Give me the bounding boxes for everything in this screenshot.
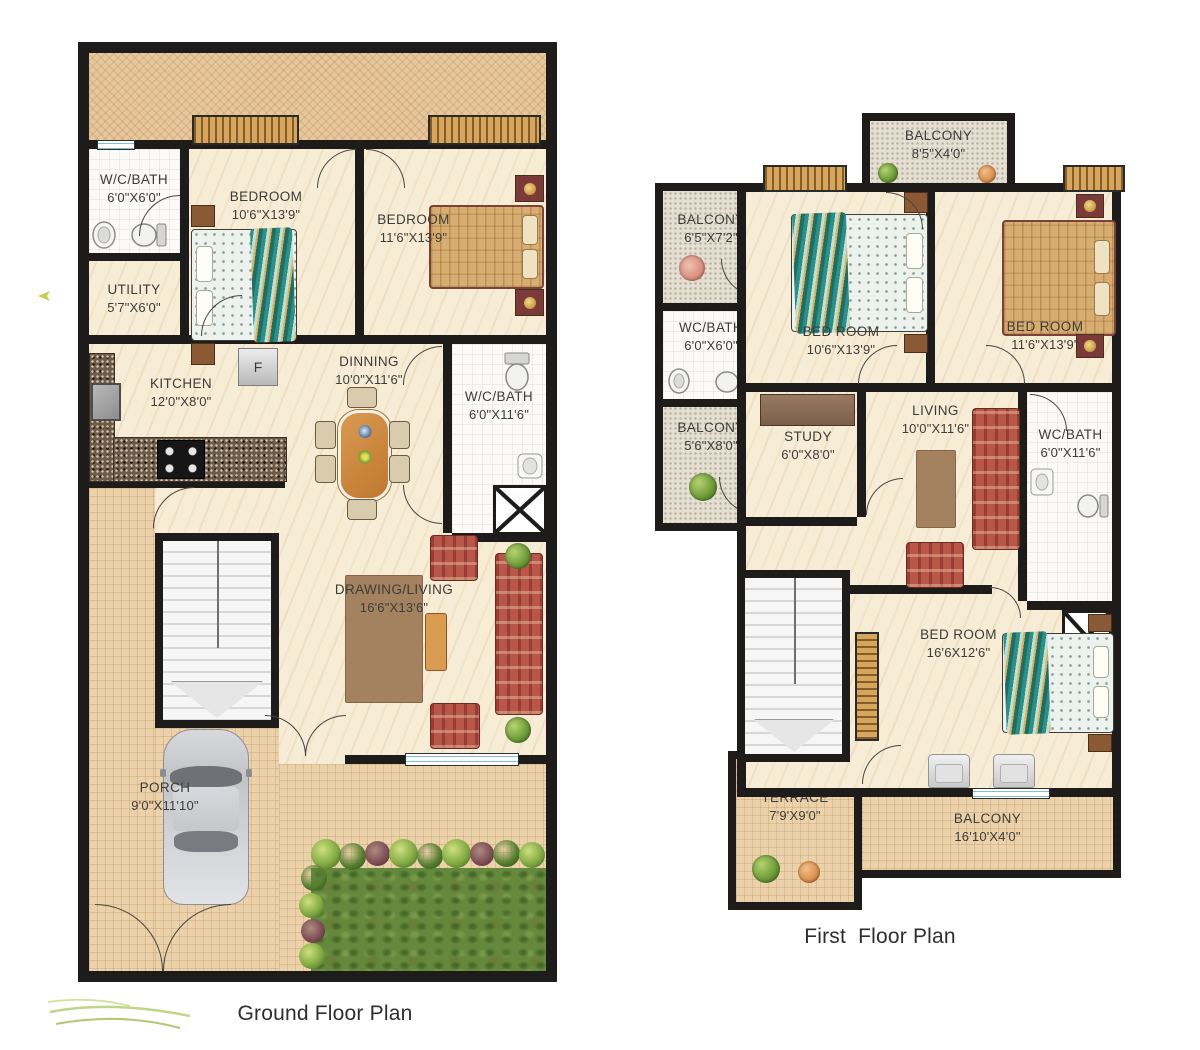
ground-floor-plan: F — [78, 42, 557, 982]
door-swing-icon — [305, 715, 346, 756]
room-dims: 10'6"X13'9" — [191, 206, 341, 223]
room-label: UTILITY 5'7"X6'0" — [91, 281, 177, 316]
room-name: W/C/BATH — [452, 388, 546, 406]
first-floor-plan: BALCONY 8'5"X4'0" TERRACE 7'9'X9'0" BALC… — [648, 106, 1130, 926]
room-dims: 11'6"X13'9" — [978, 336, 1112, 353]
wall — [1027, 601, 1112, 610]
room-name: BEDROOM — [191, 188, 341, 206]
door-swing-icon — [866, 478, 903, 515]
armchair — [906, 542, 964, 588]
stair-landing-chevron — [171, 682, 263, 718]
room-dims: 12'0"X8'0" — [111, 393, 251, 410]
plate-icon — [358, 425, 371, 438]
door-swing-icon — [862, 745, 901, 784]
window-hatch — [1063, 165, 1125, 192]
shrub-icon — [389, 839, 418, 868]
room-label: BALCONY 16'10'X4'0" — [862, 810, 1113, 845]
armchair — [430, 703, 480, 749]
room-name: BED ROOM — [978, 318, 1112, 336]
car-mirror — [160, 769, 165, 776]
fridge-label: F — [254, 359, 263, 375]
shrub-icon — [365, 841, 390, 866]
room-name: PORCH — [95, 779, 235, 797]
dining-table — [338, 410, 391, 501]
nightstand — [191, 343, 215, 365]
room-dims: 11'6"X13'9" — [351, 229, 476, 246]
garden-lawn — [311, 868, 546, 971]
plant-icon — [679, 255, 705, 281]
shrub-icon — [301, 865, 327, 891]
car-mirror — [246, 769, 251, 776]
window-hatch — [428, 115, 541, 145]
stair-rail — [217, 541, 219, 648]
pillow — [1093, 686, 1109, 718]
room-label: KITCHEN 12'0"X8'0" — [111, 375, 251, 410]
room-dims: 5'7"X6'0" — [91, 299, 177, 316]
nightstand — [1076, 194, 1104, 218]
wall — [746, 383, 1112, 392]
room-name: DINNING — [294, 353, 444, 371]
room-name: LIVING — [868, 402, 1003, 420]
pillow — [1094, 282, 1110, 316]
room-dims: 6'0"X8'0" — [754, 446, 862, 463]
armchair — [430, 535, 478, 581]
room-dims: 6'0"X6'0" — [91, 189, 177, 206]
room-name: BEDROOM — [351, 211, 476, 229]
plant-icon — [752, 855, 780, 883]
shrub-icon — [442, 839, 471, 868]
sofa — [495, 553, 543, 715]
plant-icon — [878, 163, 898, 183]
toilet-icon — [501, 351, 533, 393]
pillow — [1093, 646, 1109, 678]
window-icon — [405, 753, 519, 766]
side-passage-floor — [89, 480, 155, 971]
room-label: PORCH 9'0"X11'10" — [95, 779, 235, 814]
room-name: BED ROOM — [771, 323, 911, 341]
nightstand — [515, 175, 544, 202]
nightstand — [515, 289, 544, 316]
plant-icon — [689, 473, 717, 501]
room-dims: 10'0"X11'6" — [868, 420, 1003, 437]
room-dims: 7'9'X9'0" — [736, 807, 854, 824]
plant-icon — [505, 717, 531, 743]
window-hatch — [763, 165, 847, 192]
room-label: BEDROOM 11'6"X13'9" — [351, 211, 476, 246]
wall — [180, 140, 189, 344]
rug — [916, 450, 956, 528]
room-label: BED ROOM 10'6"X13'9" — [771, 323, 911, 358]
room-dims: 6'0"X11'6" — [1029, 444, 1112, 461]
wardrobe — [760, 394, 855, 426]
room-name: BALCONY — [862, 810, 1113, 828]
staircase — [155, 533, 279, 728]
shrub-icon — [299, 943, 325, 969]
sink-icon — [667, 367, 691, 395]
bed-throw — [792, 212, 850, 334]
room-dims: 16'6X12'6" — [876, 644, 1041, 661]
window-icon — [972, 788, 1050, 799]
stair-landing-chevron — [754, 720, 834, 752]
stove-icon — [157, 440, 205, 479]
bed — [791, 214, 928, 332]
room-label: DRAWING/LIVING 16'6"X13'6" — [294, 581, 494, 616]
room-label: W/C/BATH 6'0"X11'6" — [452, 388, 546, 423]
sink-icon — [91, 221, 117, 249]
door-swing-icon — [153, 487, 194, 528]
room-dims: 16'10'X4'0" — [862, 828, 1113, 845]
room-label: LIVING 10'0"X11'6" — [868, 402, 1003, 437]
shrub-icon — [470, 842, 494, 866]
door-swing-icon — [265, 715, 306, 756]
room-label: BEDROOM 10'6"X13'9" — [191, 188, 341, 223]
bed-throw — [250, 227, 296, 342]
shrub-icon — [417, 843, 443, 869]
pillow — [522, 249, 538, 279]
dining-chair — [347, 387, 377, 408]
toilet-icon — [1076, 492, 1110, 520]
window-hatch — [192, 115, 299, 145]
room-name: KITCHEN — [111, 375, 251, 393]
wall — [746, 517, 857, 526]
room-label: W/C/BATH 6'0"X6'0" — [91, 171, 177, 206]
stair-rail — [794, 578, 796, 684]
dining-chair — [389, 455, 410, 483]
nightstand — [1088, 734, 1112, 752]
room-name: UTILITY — [91, 281, 177, 299]
shrub-icon — [493, 840, 520, 867]
room-label: WC/BATH 6'0"X11'6" — [1029, 426, 1112, 461]
room-dims: 8'5"X4'0" — [870, 145, 1007, 162]
wall — [345, 755, 405, 764]
plant-icon — [798, 861, 820, 883]
first-floor-main: WC/BATH 6'0"X11'6" — [737, 183, 1121, 797]
room-label: BALCONY 8'5"X4'0" — [870, 127, 1007, 162]
sink-icon — [517, 453, 543, 479]
sink-icon — [1030, 468, 1054, 496]
flower-icon — [358, 450, 372, 464]
shrub-icon — [301, 919, 325, 943]
room-dims: 6'0"X11'6" — [452, 406, 546, 423]
armchair — [993, 754, 1035, 788]
door-swing-icon — [366, 149, 405, 188]
wall — [89, 253, 180, 261]
staircase — [737, 570, 850, 762]
room-label: DINNING 10'0"X11'6" — [294, 353, 444, 388]
wall — [89, 335, 546, 344]
balcony-bottom: BALCONY 16'10'X4'0" — [854, 788, 1121, 878]
wall — [443, 344, 452, 533]
room-label: STUDY 6'0"X8'0" — [754, 428, 862, 463]
pillow — [196, 246, 213, 282]
shrub-icon — [519, 842, 545, 868]
room-name: BALCONY — [870, 127, 1007, 145]
dining-chair — [315, 455, 336, 483]
duct-shaft-icon — [493, 485, 547, 535]
room-dims: 10'0"X11'6" — [294, 371, 444, 388]
window-icon — [97, 140, 135, 150]
ground-floor-title: Ground Floor Plan — [195, 1002, 455, 1026]
pillow — [906, 277, 923, 313]
dining-chair — [389, 421, 410, 449]
room-name: DRAWING/LIVING — [294, 581, 494, 599]
pillow — [1094, 240, 1110, 274]
decorative-arrow — [36, 288, 54, 304]
floor-plan-sheet: F — [0, 0, 1200, 1050]
car — [163, 729, 249, 905]
wall — [517, 755, 546, 764]
first-floor-title: First Floor Plan — [760, 925, 1000, 949]
shrub-icon — [339, 843, 366, 870]
plant-icon — [505, 543, 531, 569]
room-dims: 9'0"X11'10" — [95, 797, 235, 814]
room-label: BED ROOM 11'6"X13'9" — [978, 318, 1112, 353]
plant-icon — [978, 165, 996, 183]
door-swing-icon — [403, 485, 442, 524]
room-dims: 16'6"X13'6" — [294, 599, 494, 616]
dining-chair — [347, 499, 377, 520]
room-name: STUDY — [754, 428, 862, 446]
pillow — [522, 215, 538, 245]
door-swing-icon — [990, 587, 1021, 618]
dining-chair — [315, 421, 336, 449]
door-swing-icon — [317, 149, 356, 188]
room-dims: 10'6"X13'9" — [771, 341, 911, 358]
room-name: BED ROOM — [876, 626, 1041, 644]
nightstand — [1088, 614, 1112, 632]
room-name: W/C/BATH — [91, 171, 177, 189]
side-table — [425, 613, 447, 671]
shrub-icon — [299, 893, 324, 918]
room-label: BED ROOM 16'6X12'6" — [876, 626, 1041, 661]
pillow — [906, 233, 923, 269]
armchair — [928, 754, 970, 788]
car-rear-window — [174, 831, 238, 852]
